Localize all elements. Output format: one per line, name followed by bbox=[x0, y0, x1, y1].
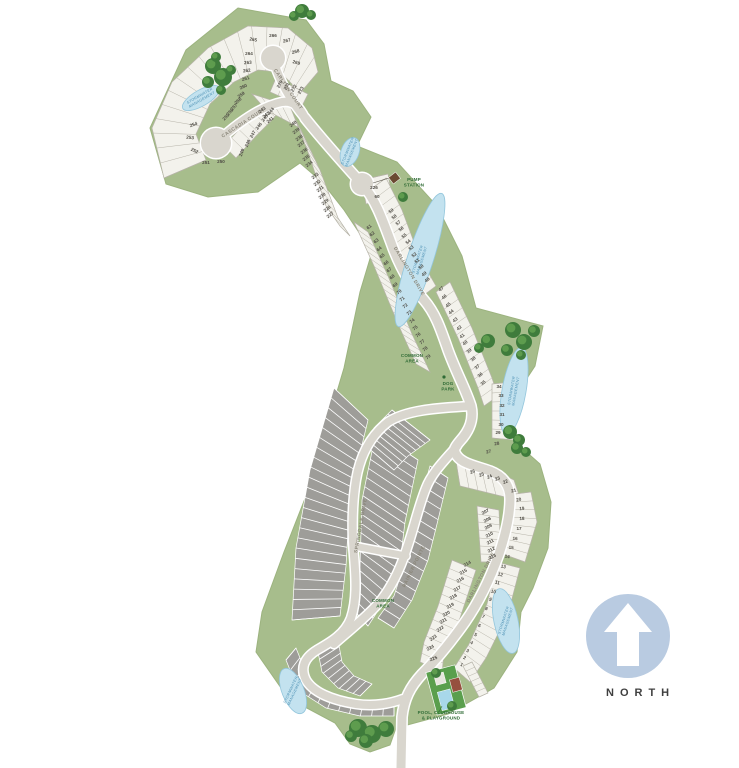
tree-icon bbox=[501, 344, 513, 356]
tree-highlight bbox=[507, 324, 516, 333]
pump-station-label: PUMPSTATION bbox=[404, 177, 424, 187]
tree-highlight bbox=[212, 53, 218, 59]
pool-clubhouse-label: POOL, CLUBHOUSE& PLAYGROUND bbox=[418, 710, 465, 720]
north-label: NORTH bbox=[606, 687, 675, 699]
tree-highlight bbox=[482, 335, 490, 343]
tree-icon bbox=[216, 85, 226, 95]
tree-icon bbox=[521, 447, 531, 457]
dog-park-dot bbox=[442, 375, 445, 378]
tree-icon bbox=[431, 668, 441, 678]
tree-highlight bbox=[203, 77, 210, 84]
tree-highlight bbox=[399, 193, 405, 199]
lot-number: 250 bbox=[217, 159, 225, 164]
lot-number: 32 bbox=[499, 403, 505, 408]
area-label-line: AREA bbox=[405, 358, 419, 363]
area-label-line: STATION bbox=[404, 182, 424, 187]
tree-highlight bbox=[514, 435, 521, 442]
tree-highlight bbox=[518, 336, 527, 345]
parcel-divider bbox=[334, 218, 345, 228]
lot-number: 16 bbox=[512, 536, 518, 541]
tree-icon bbox=[359, 734, 373, 748]
lot-number: 19 bbox=[519, 506, 525, 512]
area-label-line: & PLAYGROUND bbox=[422, 715, 461, 720]
tree-highlight bbox=[504, 426, 512, 434]
lot-number: 226 bbox=[370, 185, 378, 190]
tree-highlight bbox=[290, 12, 296, 18]
lot-number: 60 bbox=[374, 194, 380, 199]
area-label-line: POOL, CLUBHOUSE bbox=[418, 710, 465, 715]
dog-park-label: DOGPARK bbox=[441, 381, 455, 391]
tree-highlight bbox=[346, 731, 353, 738]
culdesac-bulb bbox=[261, 46, 285, 70]
tree-highlight bbox=[522, 448, 528, 454]
lot-number: 264 bbox=[245, 51, 253, 56]
lot-number: 266 bbox=[269, 33, 277, 38]
tree-icon bbox=[345, 730, 357, 742]
lot-number: 15 bbox=[508, 545, 514, 550]
tree-icon bbox=[528, 325, 540, 337]
lot-number: 253 bbox=[186, 135, 195, 141]
tree-highlight bbox=[351, 721, 361, 731]
site-map: STORMWATERMANAGEMENTSTORMWATERMANAGEMENT… bbox=[0, 0, 739, 768]
tree-icon bbox=[474, 343, 484, 353]
area-label-line: AREA bbox=[376, 603, 390, 608]
tree-highlight bbox=[529, 326, 536, 333]
tree-icon bbox=[306, 10, 316, 20]
tree-icon bbox=[505, 322, 521, 338]
area-label-line: COMMON bbox=[401, 353, 423, 358]
lot-number: 29 bbox=[495, 430, 501, 435]
lot-number: 30 bbox=[498, 422, 504, 427]
tree-icon bbox=[211, 52, 221, 62]
tree-highlight bbox=[307, 11, 313, 17]
culdesac-bulb bbox=[351, 173, 373, 195]
tree-highlight bbox=[517, 351, 523, 357]
area-label-line: COMMON bbox=[372, 598, 394, 603]
tree-highlight bbox=[432, 669, 438, 675]
lot-number: 18 bbox=[519, 516, 525, 521]
tree-icon bbox=[202, 76, 214, 88]
lot-number: 31 bbox=[499, 412, 505, 417]
tree-highlight bbox=[380, 723, 389, 732]
area-label-line: DOG bbox=[443, 381, 454, 386]
tree-highlight bbox=[296, 5, 304, 13]
tree-highlight bbox=[512, 443, 519, 450]
parcel-divider bbox=[340, 226, 350, 236]
lot-number: 251 bbox=[202, 160, 210, 165]
tree-highlight bbox=[216, 70, 226, 80]
tree-icon bbox=[378, 721, 394, 737]
lot-number: 263 bbox=[244, 60, 252, 66]
tree-highlight bbox=[217, 86, 223, 92]
north-compass: NORTH bbox=[586, 594, 675, 699]
area-label-line: PARK bbox=[441, 386, 455, 391]
lot-number: 34 bbox=[496, 384, 502, 389]
lot-number: 33 bbox=[498, 393, 504, 398]
tree-icon bbox=[516, 350, 526, 360]
tree-highlight bbox=[502, 345, 509, 352]
tree-highlight bbox=[227, 66, 233, 72]
site-plan-page: STORMWATERMANAGEMENTSTORMWATERMANAGEMENT… bbox=[0, 0, 739, 768]
tree-highlight bbox=[448, 702, 454, 708]
tree-highlight bbox=[475, 344, 481, 350]
lot-number: 17 bbox=[516, 526, 522, 531]
tree-icon bbox=[226, 65, 236, 75]
tree-icon bbox=[516, 334, 532, 350]
area-label-line: PUMP bbox=[407, 177, 421, 182]
tree-icon bbox=[398, 192, 408, 202]
tree-highlight bbox=[360, 735, 368, 743]
tree-icon bbox=[289, 11, 299, 21]
